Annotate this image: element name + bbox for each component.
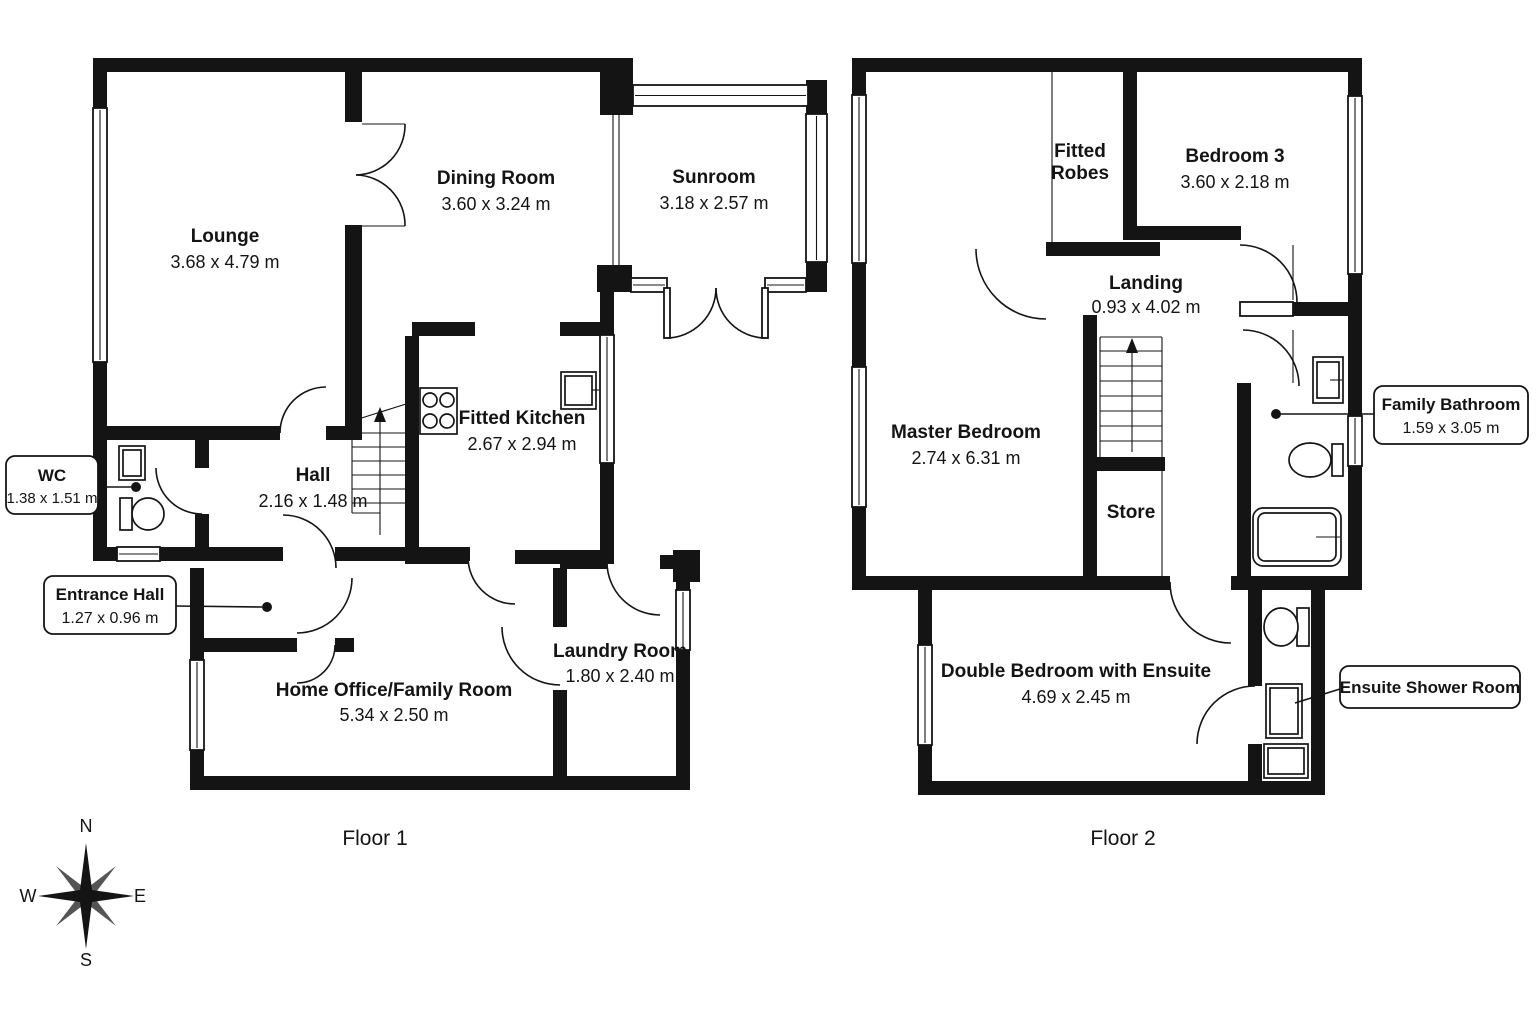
- shower-fixture: [1264, 744, 1308, 778]
- floor2-plan: Family Bathroom 1.59 x 3.05 m Ensuite Sh…: [852, 58, 1528, 850]
- compass-north-label: N: [80, 816, 93, 836]
- ensuite-toilet-fixture: [1264, 608, 1309, 646]
- dining-room-dims: 3.60 x 3.24 m: [441, 194, 550, 214]
- laundry-room-label: Laundry Room: [553, 641, 687, 662]
- master-bedroom-dims: 2.74 x 6.31 m: [911, 448, 1020, 468]
- entrance-hall-callout-dot: [262, 602, 272, 612]
- floorplan-page: WC 1.38 x 1.51 m Entrance Hall 1.27 x 0.…: [0, 0, 1536, 1024]
- hall-label: Hall: [296, 465, 331, 486]
- bedroom3-label: Bedroom 3: [1185, 146, 1284, 167]
- fitted-robes-label-line2: Robes: [1051, 163, 1109, 184]
- stairs-up-arrow-icon: [1126, 338, 1138, 452]
- ensuite-label: Ensuite Shower Room: [1340, 678, 1520, 697]
- family-bathroom-callout-dot: [1271, 409, 1281, 419]
- bathroom-toilet-fixture: [1289, 443, 1343, 477]
- ensuite-sink-fixture: [1266, 684, 1302, 738]
- ensuite-callout: Ensuite Shower Room: [1295, 666, 1520, 708]
- bathroom-corridor-jambs: [1240, 245, 1293, 383]
- landing-dims: 0.93 x 4.02 m: [1091, 297, 1200, 317]
- floor1-label: Floor 1: [342, 827, 407, 850]
- wc-toilet-fixture: [120, 498, 164, 530]
- wc-dims: 1.38 x 1.51 m: [7, 490, 98, 507]
- family-bathroom-dims: 1.59 x 3.05 m: [1403, 420, 1500, 437]
- bedroom3-dims: 3.60 x 2.18 m: [1180, 172, 1289, 192]
- dining-room-label: Dining Room: [437, 168, 555, 189]
- wc-label: WC: [38, 466, 66, 485]
- compass-east-label: E: [134, 886, 146, 906]
- lounge-label: Lounge: [191, 226, 260, 247]
- home-office-label: Home Office/Family Room: [276, 680, 513, 701]
- sunroom-label: Sunroom: [672, 167, 755, 188]
- floor1-plan: WC 1.38 x 1.51 m Entrance Hall 1.27 x 0.…: [6, 58, 827, 850]
- master-bedroom-label: Master Bedroom: [891, 422, 1041, 443]
- compass-west-label: W: [20, 886, 37, 906]
- double-bedroom-label: Double Bedroom with Ensuite: [941, 661, 1211, 682]
- floor2-stairs: [1100, 337, 1162, 576]
- stairs-up-arrow-icon: [374, 407, 386, 535]
- bathtub-fixture: [1253, 508, 1341, 566]
- wc-callout-dot: [131, 482, 141, 492]
- family-bathroom-label: Family Bathroom: [1382, 395, 1521, 414]
- floorplan-drawing: WC 1.38 x 1.51 m Entrance Hall 1.27 x 0.…: [0, 0, 1536, 1024]
- compass-south-label: S: [80, 950, 92, 970]
- home-office-dims: 5.34 x 2.50 m: [339, 705, 448, 725]
- hall-dims: 2.16 x 1.48 m: [258, 491, 367, 511]
- family-bathroom-callout: Family Bathroom 1.59 x 3.05 m: [1271, 386, 1528, 444]
- floor2-label: Floor 2: [1090, 827, 1155, 850]
- kitchen-dims: 2.67 x 2.94 m: [467, 434, 576, 454]
- wc-sink-fixture: [119, 446, 145, 480]
- store-label: Store: [1107, 502, 1156, 523]
- laundry-room-dims: 1.80 x 2.40 m: [565, 666, 674, 686]
- entrance-hall-dims: 1.27 x 0.96 m: [62, 610, 159, 627]
- sunroom-dims: 3.18 x 2.57 m: [659, 193, 768, 213]
- floor2-windows: [852, 95, 1362, 745]
- landing-label: Landing: [1109, 273, 1183, 294]
- double-bedroom-dims: 4.69 x 2.45 m: [1021, 687, 1130, 707]
- kitchen-label: Fitted Kitchen: [459, 408, 586, 429]
- compass-rose-icon: N S W E: [20, 816, 147, 970]
- bathroom-sink-fixture: [1313, 357, 1343, 403]
- lounge-dims: 3.68 x 4.79 m: [170, 252, 279, 272]
- entrance-hall-callout: Entrance Hall 1.27 x 0.96 m: [44, 576, 272, 634]
- entrance-hall-label: Entrance Hall: [56, 585, 165, 604]
- stove-fixture: [420, 388, 457, 434]
- kitchen-sink-fixture: [561, 372, 599, 409]
- fitted-robes-label-line1: Fitted: [1054, 141, 1106, 162]
